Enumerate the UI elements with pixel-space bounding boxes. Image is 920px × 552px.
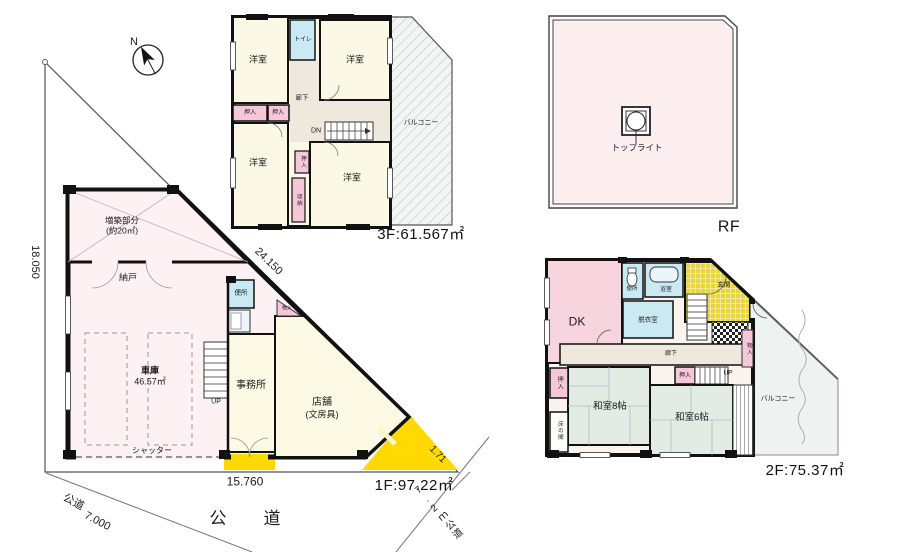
label-area-3f: 3F:61.567㎡ [377, 227, 465, 243]
toilet-icon [627, 268, 637, 286]
label-area-1f: 1F:97.22㎡ [375, 478, 454, 494]
label-shutter: シャッター [132, 447, 172, 455]
label-2f-dressing: 脱衣室 [638, 318, 658, 325]
label-closet-1f: 物入 [282, 306, 292, 311]
corridor-2f [560, 344, 752, 365]
label-up-1f: UP [211, 398, 221, 405]
label-extension-2: (約20㎡) [106, 227, 138, 236]
label-3f-dn: DN [311, 127, 321, 134]
north-label: N [130, 37, 138, 49]
label-3f-closet-w1: 押入 [244, 110, 256, 116]
floor-plan-3f [228, 8, 468, 253]
label-3f-closet-center: 押入 [299, 156, 305, 169]
floor-plan-sheet: N 18.050 24.150 15.760 1.71 公道 7.000 公 道… [0, 0, 920, 552]
label-2f-up: UP [723, 371, 732, 378]
room-3f-sw [233, 123, 288, 227]
label-washitsu6: 和室6帖 [675, 413, 709, 423]
room-office [228, 334, 275, 452]
label-toplight: トップライト [611, 144, 662, 153]
label-toilet-1f: 便所 [235, 291, 248, 298]
balcony-2f [753, 300, 838, 455]
label-office: 事務所 [236, 381, 266, 392]
veranda-strip [733, 385, 753, 455]
label-tokonoma: 床の間 [556, 421, 562, 441]
label-shop-1: 店舗 [312, 398, 332, 409]
label-garage: 車庫 [141, 366, 159, 375]
label-2f-entrance: 玄関 [718, 283, 731, 290]
label-dk: DK [569, 316, 586, 329]
label-2f-bath: 浴室 [660, 287, 672, 293]
label-3f-room-ne: 洋室 [346, 55, 364, 64]
stairs-entrance [687, 294, 707, 340]
road-south-label: 公 道 [210, 510, 291, 528]
label-2f-corridor: 廊下 [665, 351, 677, 357]
label-shop-2: (文房具) [306, 410, 339, 419]
label-3f-storage: 収納 [295, 194, 301, 207]
label-area-rf: RF [718, 220, 740, 237]
window [66, 372, 71, 410]
dim-left: 18.050 [28, 245, 40, 279]
label-3f-toilet: トイレ [294, 37, 312, 43]
label-3f-room-se: 洋室 [343, 173, 361, 182]
bathtub-icon [650, 267, 678, 282]
north-compass [133, 44, 163, 77]
label-storeroom: 納戸 [119, 273, 137, 282]
label-3f-balcony: バルコニー [404, 119, 439, 126]
sink-basin [231, 313, 241, 329]
lot-corner-marker [43, 60, 48, 65]
label-area-2f: 2F:75.37㎡ [766, 463, 845, 479]
label-3f-corridor: 廊下 [296, 96, 309, 103]
floor-plan-2f [540, 248, 850, 463]
label-2f-closet-left: 押入 [556, 376, 562, 390]
label-extension-1: 増築部分 [105, 217, 139, 226]
label-washitsu8: 和室8帖 [593, 402, 627, 412]
label-3f-closet-w2: 押入 [272, 110, 284, 116]
road-se-tick [452, 472, 470, 490]
floor-plan-rf [545, 12, 745, 217]
label-2f-toilet: 便所 [626, 287, 637, 293]
label-2f-closet-right: 物入 [745, 343, 751, 356]
room-3f-se [310, 142, 390, 227]
dim-bottom: 15.760 [227, 476, 264, 489]
label-2f-closet-center: 押入 [679, 373, 691, 379]
label-3f-room-nw: 洋室 [249, 55, 267, 64]
label-2f-balcony: バルコニー [761, 395, 796, 402]
label-3f-room-sw: 洋室 [249, 158, 267, 167]
label-garage-area: 46.57㎡ [134, 377, 166, 386]
window [66, 296, 71, 334]
